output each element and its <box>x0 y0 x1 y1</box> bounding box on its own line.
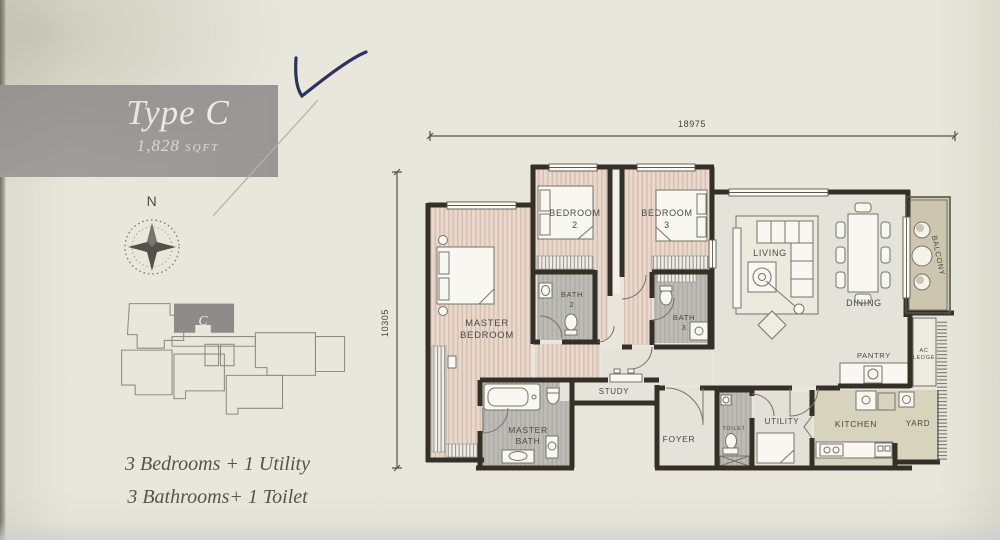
bedroom2-window <box>549 164 597 171</box>
service-shaft <box>612 171 620 294</box>
room-label-master-bedroom-1: MASTER <box>465 318 509 329</box>
brochure-photo: Type C 1,828 SQFT N C <box>0 0 1000 540</box>
room-label-master-bath-1: MASTER <box>508 425 548 435</box>
room-label-bath2-2: 2 <box>570 300 575 309</box>
dimension-top-value: 18975 <box>678 119 706 129</box>
room-label-ac-ledge-1: AC <box>919 348 928 354</box>
master-corridor-floor <box>535 344 600 378</box>
floor-plan: MASTER BEDROOM BEDROOM 2 BEDROOM 3 BATH … <box>0 0 1000 540</box>
room-label-master-bath-2: BATH <box>516 436 541 446</box>
room-label-bedroom2-2: 2 <box>572 220 578 230</box>
yard-fixture <box>899 392 914 407</box>
room-label-bedroom3-2: 3 <box>664 220 670 230</box>
room-label-kitchen: KITCHEN <box>835 419 877 429</box>
room-label-yard: YARD <box>906 419 930 428</box>
master-bed <box>437 247 494 304</box>
bedroom3-wardrobe <box>652 256 708 269</box>
master-wardrobe <box>432 346 446 452</box>
room-label-bedroom3-1: BEDROOM <box>641 208 692 218</box>
bedroom3-floor-strip <box>624 272 652 345</box>
dimension-line-top <box>427 131 958 141</box>
balcony-slider <box>903 217 910 298</box>
room-label-toilet: TOILET <box>722 426 745 432</box>
balcony-planters <box>912 222 932 290</box>
room-label-foyer: FOYER <box>663 434 696 444</box>
room-label-bedroom2-1: BEDROOM <box>549 208 600 218</box>
room-label-dining: DINING <box>846 298 882 308</box>
bedroom2-floor-strip <box>597 272 608 340</box>
master-window <box>447 202 516 209</box>
master-wardrobe-2 <box>446 444 478 457</box>
room-label-pantry: PANTRY <box>857 351 891 360</box>
pantry-counter <box>840 363 908 385</box>
room-label-ac-ledge-2: LEDGE <box>913 355 935 361</box>
living-side-window <box>709 240 716 268</box>
foyer-floor <box>659 387 712 466</box>
living-window <box>729 189 828 196</box>
bedroom2-wardrobe <box>537 256 593 269</box>
master-wall-light-1 <box>439 236 448 245</box>
utility-bed <box>757 433 794 463</box>
room-label-bath2-1: BATH <box>561 290 583 299</box>
bath3-vanity <box>656 274 696 282</box>
dimension-line-left <box>392 169 402 471</box>
dimension-left-value: 10305 <box>380 309 390 337</box>
room-label-bath3-2: 3 <box>682 323 687 332</box>
master-wall-light-2 <box>439 307 448 316</box>
room-label-bath3-1: BATH <box>673 313 695 322</box>
room-label-utility: UTILITY <box>765 417 800 426</box>
room-label-living: LIVING <box>753 248 787 258</box>
master-bench <box>448 356 456 368</box>
room-label-study: STUDY <box>599 387 630 396</box>
bedroom3-window <box>637 164 695 171</box>
room-label-master-bedroom-2: BEDROOM <box>460 330 514 341</box>
